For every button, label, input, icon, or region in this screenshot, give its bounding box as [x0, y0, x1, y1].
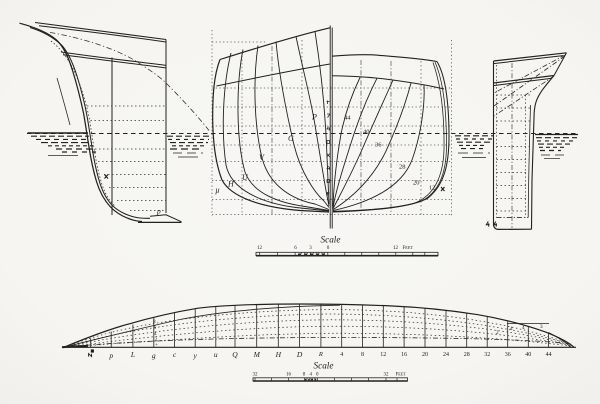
svg-text:2: 2	[496, 330, 499, 336]
svg-text:R: R	[318, 351, 323, 358]
svg-text:24: 24	[443, 352, 449, 358]
svg-text:20: 20	[413, 180, 420, 187]
svg-text:H: H	[275, 350, 282, 359]
svg-text:12: 12	[380, 352, 386, 358]
svg-text:Q: Q	[232, 350, 238, 359]
svg-text:16: 16	[286, 373, 292, 378]
svg-text:16: 16	[401, 352, 407, 358]
svg-text:44: 44	[344, 115, 351, 122]
svg-text:40: 40	[363, 129, 370, 136]
svg-text:36: 36	[505, 352, 511, 358]
svg-text:32: 32	[384, 373, 390, 378]
svg-text:p: p	[108, 351, 113, 360]
svg-text:g: g	[152, 351, 156, 360]
svg-text:20: 20	[422, 352, 428, 358]
svg-text:μ: μ	[215, 186, 220, 195]
svg-text:y: y	[193, 351, 198, 360]
svg-text:12: 12	[429, 185, 436, 192]
svg-text:8: 8	[361, 352, 364, 358]
svg-text:p: p	[156, 207, 161, 216]
svg-text:4: 4	[340, 352, 343, 358]
svg-text:+: +	[155, 342, 158, 348]
svg-text:44: 44	[546, 352, 552, 358]
svg-text:28: 28	[399, 164, 406, 171]
svg-text:u: u	[214, 350, 218, 359]
svg-text:4: 4	[510, 326, 513, 332]
svg-text:P: P	[311, 113, 317, 122]
svg-text:Scale: Scale	[321, 235, 341, 245]
svg-text:12: 12	[393, 246, 399, 251]
svg-text:L: L	[130, 350, 135, 359]
svg-text:32: 32	[253, 373, 259, 378]
svg-text:28: 28	[464, 352, 470, 358]
svg-text:36: 36	[375, 142, 382, 149]
svg-text:12: 12	[257, 246, 263, 251]
svg-text:4: 4	[522, 325, 525, 331]
svg-text:32: 32	[484, 352, 490, 358]
svg-text:M: M	[253, 350, 261, 359]
svg-text:Scale: Scale	[314, 361, 334, 371]
svg-text:40: 40	[525, 352, 531, 358]
svg-text:G: G	[288, 134, 294, 143]
svg-text:3: 3	[540, 324, 543, 330]
svg-text:D: D	[296, 350, 303, 359]
